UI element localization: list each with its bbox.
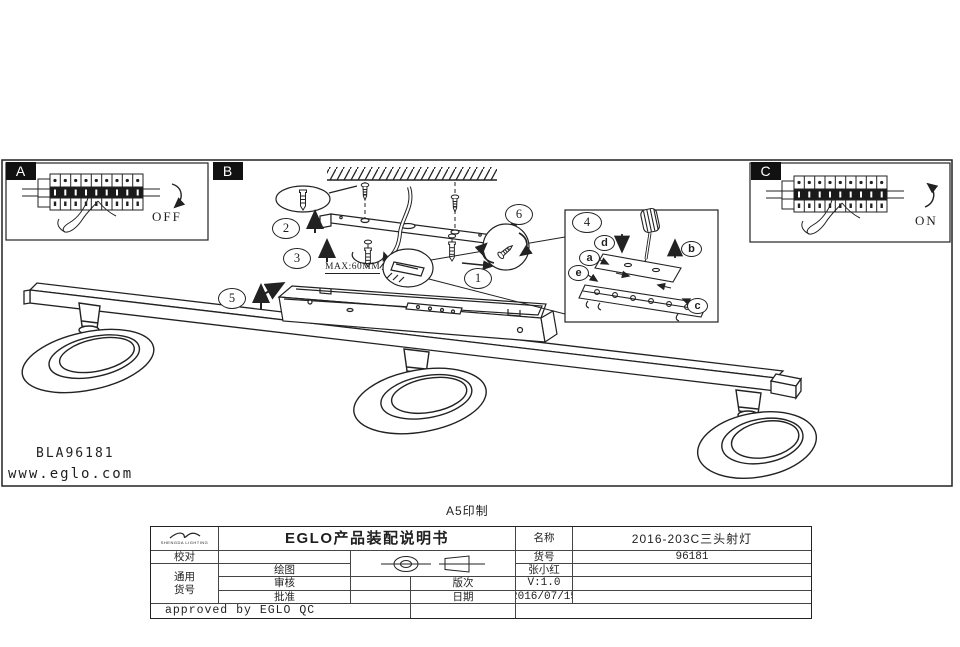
common-label-line2: 货号 xyxy=(174,584,195,596)
step-callout-2: 2 xyxy=(272,218,300,239)
step-callout-5: 5 xyxy=(218,288,246,309)
approved-label: 批准 xyxy=(219,591,350,603)
step-callout-6: 6 xyxy=(505,204,533,225)
common-item-no-value-1 xyxy=(573,564,811,576)
website-url: www.eglo.com xyxy=(8,466,133,482)
switch-on-text: ON xyxy=(915,213,938,229)
spotlight-head-left xyxy=(16,303,159,403)
step-callout-3: 3 xyxy=(283,248,311,269)
panel-c-label: C xyxy=(751,162,781,180)
model-code: BLA96181 xyxy=(36,446,115,461)
spotlight-head-right xyxy=(692,390,821,487)
drafted-value: 张小红 xyxy=(516,564,572,576)
proofread-value xyxy=(219,551,350,563)
company-logo: SHENGDA LIGHTING xyxy=(151,527,218,550)
date-label: 日期 xyxy=(411,591,515,603)
approved-value xyxy=(351,591,410,603)
assembly-instruction-sheet: A B C OFF ON 1 2 3 5 6 4 a b c d e MAX:6… xyxy=(0,0,960,647)
reviewed-label: 审核 xyxy=(219,577,350,590)
screw-tighten-detail xyxy=(483,224,529,270)
version-value: V:1.0 xyxy=(516,577,572,590)
proofread-label: 校对 xyxy=(151,551,218,563)
detail-callout-4: 4 xyxy=(572,212,602,233)
panel-a-label: A xyxy=(6,162,36,180)
item-no-value: 96181 xyxy=(573,551,811,563)
name-label: 名称 xyxy=(516,527,572,550)
ceiling-hatch xyxy=(327,167,497,180)
print-format-note: A5印制 xyxy=(446,502,489,519)
part-label-c: c xyxy=(687,298,708,314)
screw-icon xyxy=(361,183,369,200)
title-block: SHENGDA LIGHTING EGLO产品装配说明书 名称 2016-203… xyxy=(150,526,812,619)
panel-b-label: B xyxy=(213,162,243,180)
common-item-no-value-3 xyxy=(573,591,811,603)
spotlight-head-middle xyxy=(349,349,492,443)
common-item-no-value-2 xyxy=(573,577,811,590)
date-value: 2016/07/15 xyxy=(516,591,572,603)
projection-symbol xyxy=(351,551,515,576)
wall-plug-detail xyxy=(276,186,357,212)
first-angle-projection-icon xyxy=(373,554,493,574)
reviewed-value xyxy=(351,577,410,590)
empty-cell-1 xyxy=(411,604,515,618)
name-value: 2016-203C三头射灯 xyxy=(573,527,811,550)
part-label-e: e xyxy=(568,265,589,281)
switch-off-text: OFF xyxy=(152,209,182,225)
part-label-a: a xyxy=(579,250,600,266)
empty-cell-2 xyxy=(516,604,811,618)
version-label: 版次 xyxy=(411,577,515,590)
doc-title: EGLO产品装配说明书 xyxy=(219,527,515,550)
part-label-d: d xyxy=(594,235,615,251)
item-no-label: 货号 xyxy=(516,551,572,563)
step-callout-1: 1 xyxy=(464,268,492,289)
approved-by-note: approved by EGLO QC xyxy=(151,604,410,618)
common-item-no-label: 通用 货号 xyxy=(151,564,218,603)
logo-text: SHENGDA LIGHTING xyxy=(161,541,209,545)
part-label-b: b xyxy=(681,241,702,257)
max-depth-note: MAX:60MM xyxy=(325,262,380,274)
screw-icon xyxy=(451,195,459,212)
drafted-label: 绘图 xyxy=(219,564,350,576)
common-label-line1: 通用 xyxy=(174,571,195,583)
panel-a-breaker-off-diagram xyxy=(6,163,208,240)
